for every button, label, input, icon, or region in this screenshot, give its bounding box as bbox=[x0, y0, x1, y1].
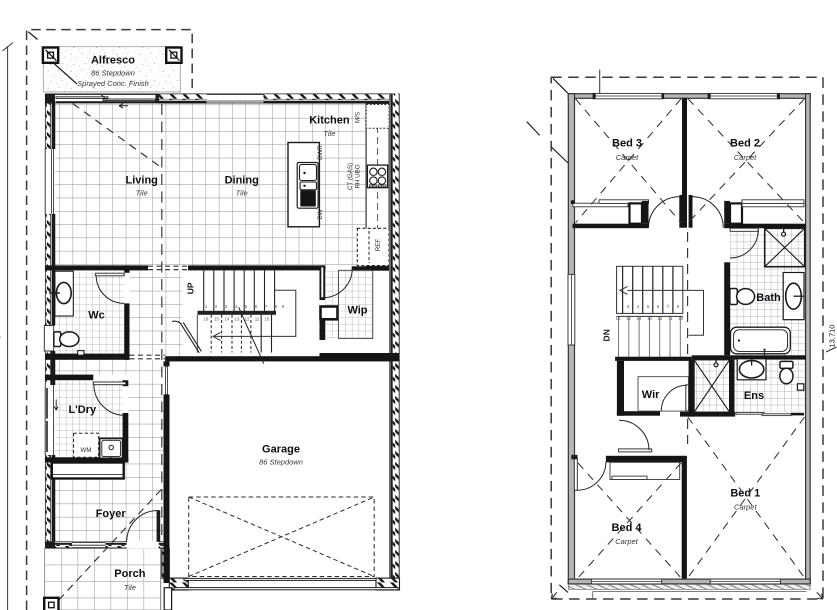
svg-text:M/S: M/S bbox=[355, 112, 362, 123]
svg-text:11: 11 bbox=[668, 316, 673, 321]
svg-text:Wip: Wip bbox=[347, 305, 367, 317]
svg-text:Bed 4: Bed 4 bbox=[612, 522, 643, 534]
svg-text:WM: WM bbox=[81, 447, 92, 454]
svg-text:Carpet: Carpet bbox=[734, 503, 757, 512]
svg-text:CT (GAS): CT (GAS) bbox=[347, 163, 354, 190]
svg-text:DWR: DWR bbox=[317, 145, 324, 160]
svg-text:13: 13 bbox=[235, 317, 240, 322]
svg-text:Tile: Tile bbox=[236, 189, 248, 198]
svg-text:Bed 1: Bed 1 bbox=[730, 488, 760, 500]
svg-text:11: 11 bbox=[255, 317, 260, 322]
svg-text:Carpet: Carpet bbox=[615, 537, 638, 546]
svg-text:Alfresco: Alfresco bbox=[91, 55, 135, 67]
svg-text:14: 14 bbox=[637, 316, 642, 321]
svg-text:Living: Living bbox=[126, 175, 158, 187]
svg-text:86 Stepdown: 86 Stepdown bbox=[91, 69, 135, 78]
svg-text:Foyer: Foyer bbox=[96, 508, 127, 520]
svg-text:Bed 2: Bed 2 bbox=[730, 138, 760, 150]
svg-text:UP: UP bbox=[186, 282, 196, 294]
svg-text:Ens: Ens bbox=[744, 390, 764, 402]
svg-text:REF: REF bbox=[375, 239, 382, 252]
svg-text:13: 13 bbox=[647, 316, 652, 321]
svg-text:DN: DN bbox=[602, 329, 612, 341]
svg-text:DW: DW bbox=[317, 209, 324, 219]
svg-text:14,570: 14,570 bbox=[0, 324, 2, 347]
svg-text:15: 15 bbox=[214, 317, 219, 322]
svg-text:16: 16 bbox=[616, 316, 621, 321]
svg-text:Wc: Wc bbox=[88, 310, 105, 322]
svg-text:12: 12 bbox=[658, 316, 663, 321]
svg-text:Tile: Tile bbox=[323, 129, 335, 138]
svg-text:12: 12 bbox=[245, 317, 250, 322]
svg-text:Carpet: Carpet bbox=[616, 153, 639, 162]
svg-text:Tile: Tile bbox=[136, 189, 148, 198]
svg-text:Carpet: Carpet bbox=[734, 153, 757, 162]
svg-text:10: 10 bbox=[679, 316, 684, 321]
svg-text:RH UBO: RH UBO bbox=[355, 164, 362, 188]
svg-text:15: 15 bbox=[626, 316, 631, 321]
svg-text:Wir: Wir bbox=[642, 389, 660, 401]
svg-text:14: 14 bbox=[225, 317, 230, 322]
svg-text:Sprayed Conc. Finish: Sprayed Conc. Finish bbox=[77, 79, 149, 88]
svg-text:Dining: Dining bbox=[225, 175, 259, 187]
svg-text:Garage: Garage bbox=[262, 444, 300, 456]
svg-text:10: 10 bbox=[265, 317, 270, 322]
svg-text:16: 16 bbox=[204, 317, 209, 322]
svg-text:L'Dry: L'Dry bbox=[68, 404, 97, 416]
svg-text:Tile: Tile bbox=[124, 583, 136, 592]
svg-text:86 Stepdown: 86 Stepdown bbox=[259, 458, 303, 467]
svg-text:Porch: Porch bbox=[114, 568, 145, 580]
svg-text:Kitchen: Kitchen bbox=[309, 115, 350, 127]
svg-text:13,710: 13,710 bbox=[828, 325, 837, 348]
svg-text:Bath: Bath bbox=[756, 292, 781, 304]
